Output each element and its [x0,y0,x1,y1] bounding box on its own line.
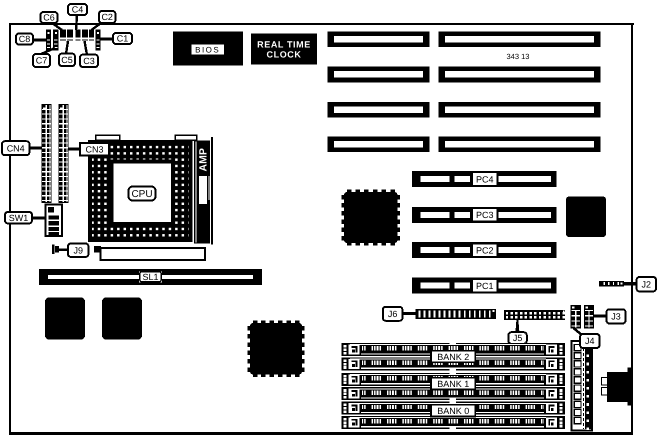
svg-text:CN3: CN3 [85,145,103,155]
svg-text:CPU: CPU [131,189,152,200]
svg-text:AMP: AMP [198,148,210,171]
svg-text:SW1: SW1 [9,213,29,223]
svg-text:PC3: PC3 [476,210,494,220]
svg-text:BIOS: BIOS [195,45,220,54]
svg-text:BANK 1: BANK 1 [437,379,469,389]
svg-text:343 13: 343 13 [507,52,530,61]
svg-text:BANK 0: BANK 0 [437,406,469,416]
svg-text:J5: J5 [513,333,523,343]
svg-text:C6: C6 [43,13,55,23]
svg-text:C8: C8 [19,34,31,44]
svg-text:J2: J2 [642,279,652,289]
svg-text:C4: C4 [72,5,84,15]
svg-text:C5: C5 [61,55,73,65]
svg-text:J9: J9 [73,245,83,255]
svg-text:PC2: PC2 [476,246,494,256]
svg-text:PC1: PC1 [476,281,494,291]
svg-text:C3: C3 [83,56,95,66]
svg-text:CN4: CN4 [7,143,25,153]
svg-text:C2: C2 [101,12,113,22]
svg-text:J4: J4 [585,336,595,346]
svg-text:SL1: SL1 [142,272,158,282]
svg-text:BANK 2: BANK 2 [437,352,469,362]
svg-text:PC4: PC4 [476,174,494,184]
svg-text:C7: C7 [36,56,48,66]
svg-text:J6: J6 [388,309,398,319]
svg-text:REAL TIME: REAL TIME [257,40,311,50]
svg-text:CLOCK: CLOCK [267,50,302,60]
svg-text:J3: J3 [611,312,621,322]
svg-text:C1: C1 [117,34,129,44]
